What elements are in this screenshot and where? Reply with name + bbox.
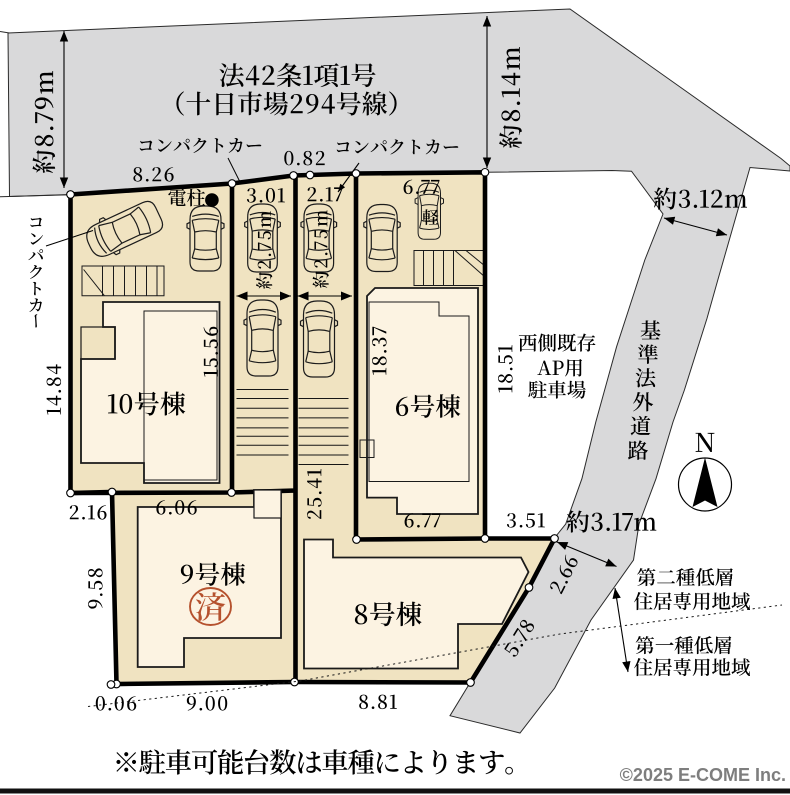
svg-text:©2025 E-COME Inc.: ©2025 E-COME Inc. <box>620 765 786 785</box>
